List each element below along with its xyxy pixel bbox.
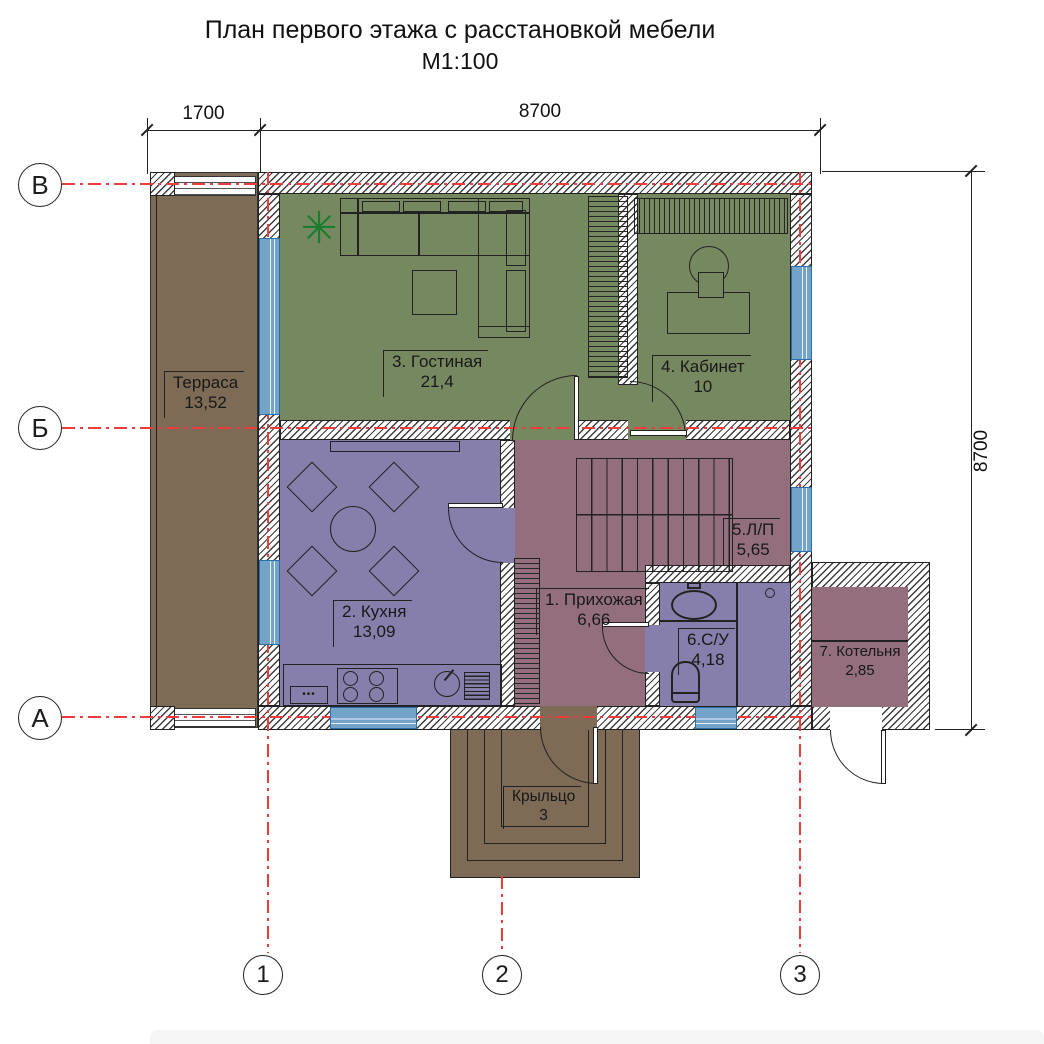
- door-leaf-office: [630, 430, 687, 436]
- window-kitchen-west: [259, 560, 280, 645]
- axis-line-2: [501, 876, 503, 953]
- sofa-chaise-end: [478, 326, 530, 338]
- room-label-kitchen: 2. Кухня 13,09: [333, 600, 412, 647]
- room-label-office: 4. Кабинет 10: [652, 355, 751, 402]
- door-leaf-living: [574, 376, 579, 440]
- axis-bubble-3: 3: [780, 955, 820, 995]
- dining-table: [330, 506, 376, 552]
- page-title: План первого этажа с расстановкой мебели: [120, 16, 800, 45]
- scale-label: М1:100: [120, 48, 800, 75]
- window-stairs-east: [791, 487, 812, 552]
- bathroom-tap: [687, 582, 701, 589]
- axis-line-b: [62, 427, 812, 429]
- axis-bubble-1: 1: [243, 955, 283, 995]
- sofa-cushion-divider: [418, 212, 420, 256]
- axis-bubble-v: В: [18, 163, 62, 207]
- sofa-armrest-line: [357, 198, 359, 256]
- stove-burner: [343, 687, 358, 702]
- room-terrace-floor: [150, 172, 258, 728]
- room-label-hallway: 1. Прихожая 6,66: [536, 588, 649, 635]
- dim-right: 8700: [971, 427, 993, 475]
- stove-burner: [369, 687, 384, 702]
- window-office-east: [791, 266, 812, 360]
- door-leaf-boiler: [881, 730, 886, 784]
- desk: [667, 292, 750, 334]
- axis-line-v: [62, 183, 812, 185]
- extension-line: [822, 171, 985, 172]
- axis-bubble-2: 2: [482, 955, 522, 995]
- window-living-west: [259, 238, 280, 415]
- wardrobe-office: [634, 198, 788, 234]
- sofa-pillow: [362, 201, 400, 212]
- plant-icon: ✳: [296, 206, 342, 252]
- bathroom-counter-line: [660, 620, 737, 622]
- bottom-scroll-bar: [150, 1030, 1044, 1044]
- window-kitchen-south: [330, 707, 417, 729]
- terrace-corner-pier: [150, 706, 175, 730]
- stove-burner: [343, 671, 358, 686]
- dim-top-left: 1700: [147, 103, 260, 125]
- boiler-equipment-line: [812, 640, 908, 642]
- coffee-table: [412, 270, 457, 315]
- door-leaf-entrance: [593, 727, 598, 784]
- window-bathroom-south: [695, 707, 737, 729]
- axis-bubble-a: А: [18, 696, 62, 740]
- dish-rack: [464, 672, 490, 700]
- stove-burner: [369, 671, 384, 686]
- sofa-chaise-cushion: [506, 270, 526, 332]
- dimension-line-top: [147, 130, 821, 131]
- wardrobe-living: [588, 196, 628, 378]
- terrace-railing-left: [156, 176, 157, 726]
- door-arc-boiler: [830, 730, 884, 784]
- axis-bubble-b: Б: [18, 406, 62, 450]
- tv-stand: [330, 441, 460, 452]
- desk-chair-seat: [698, 272, 724, 298]
- door-leaf-kitchen: [448, 503, 503, 508]
- doorway-boiler: [830, 707, 882, 730]
- sofa-chaise-cushion: [506, 210, 526, 266]
- room-label-terrace: Терраса 13,52: [164, 371, 244, 418]
- toilet-seat-line: [672, 692, 699, 694]
- stairs: [576, 458, 733, 572]
- shower-divider: [736, 583, 738, 706]
- room-label-living: 3. Гостиная 21,4: [383, 350, 488, 397]
- room-label-porch: Крыльцо 3: [503, 786, 581, 829]
- room-label-boiler: 7. Котельня 2,85: [812, 643, 908, 681]
- wall-kitchen-hall: [500, 440, 515, 706]
- extension-line: [935, 729, 985, 730]
- floor-plan-canvas: План первого этажа с расстановкой мебели…: [0, 0, 1044, 1044]
- bathroom-sink: [671, 590, 717, 620]
- room-label-bathroom: 6.С/У 4,18: [678, 628, 735, 675]
- room-label-stairs: 5.Л/П 5,65: [723, 518, 780, 565]
- sofa-pillow: [403, 201, 441, 212]
- kitchen-drawer: •••: [290, 686, 328, 704]
- shower-drain: [765, 588, 775, 598]
- dim-top-right: 8700: [260, 101, 820, 123]
